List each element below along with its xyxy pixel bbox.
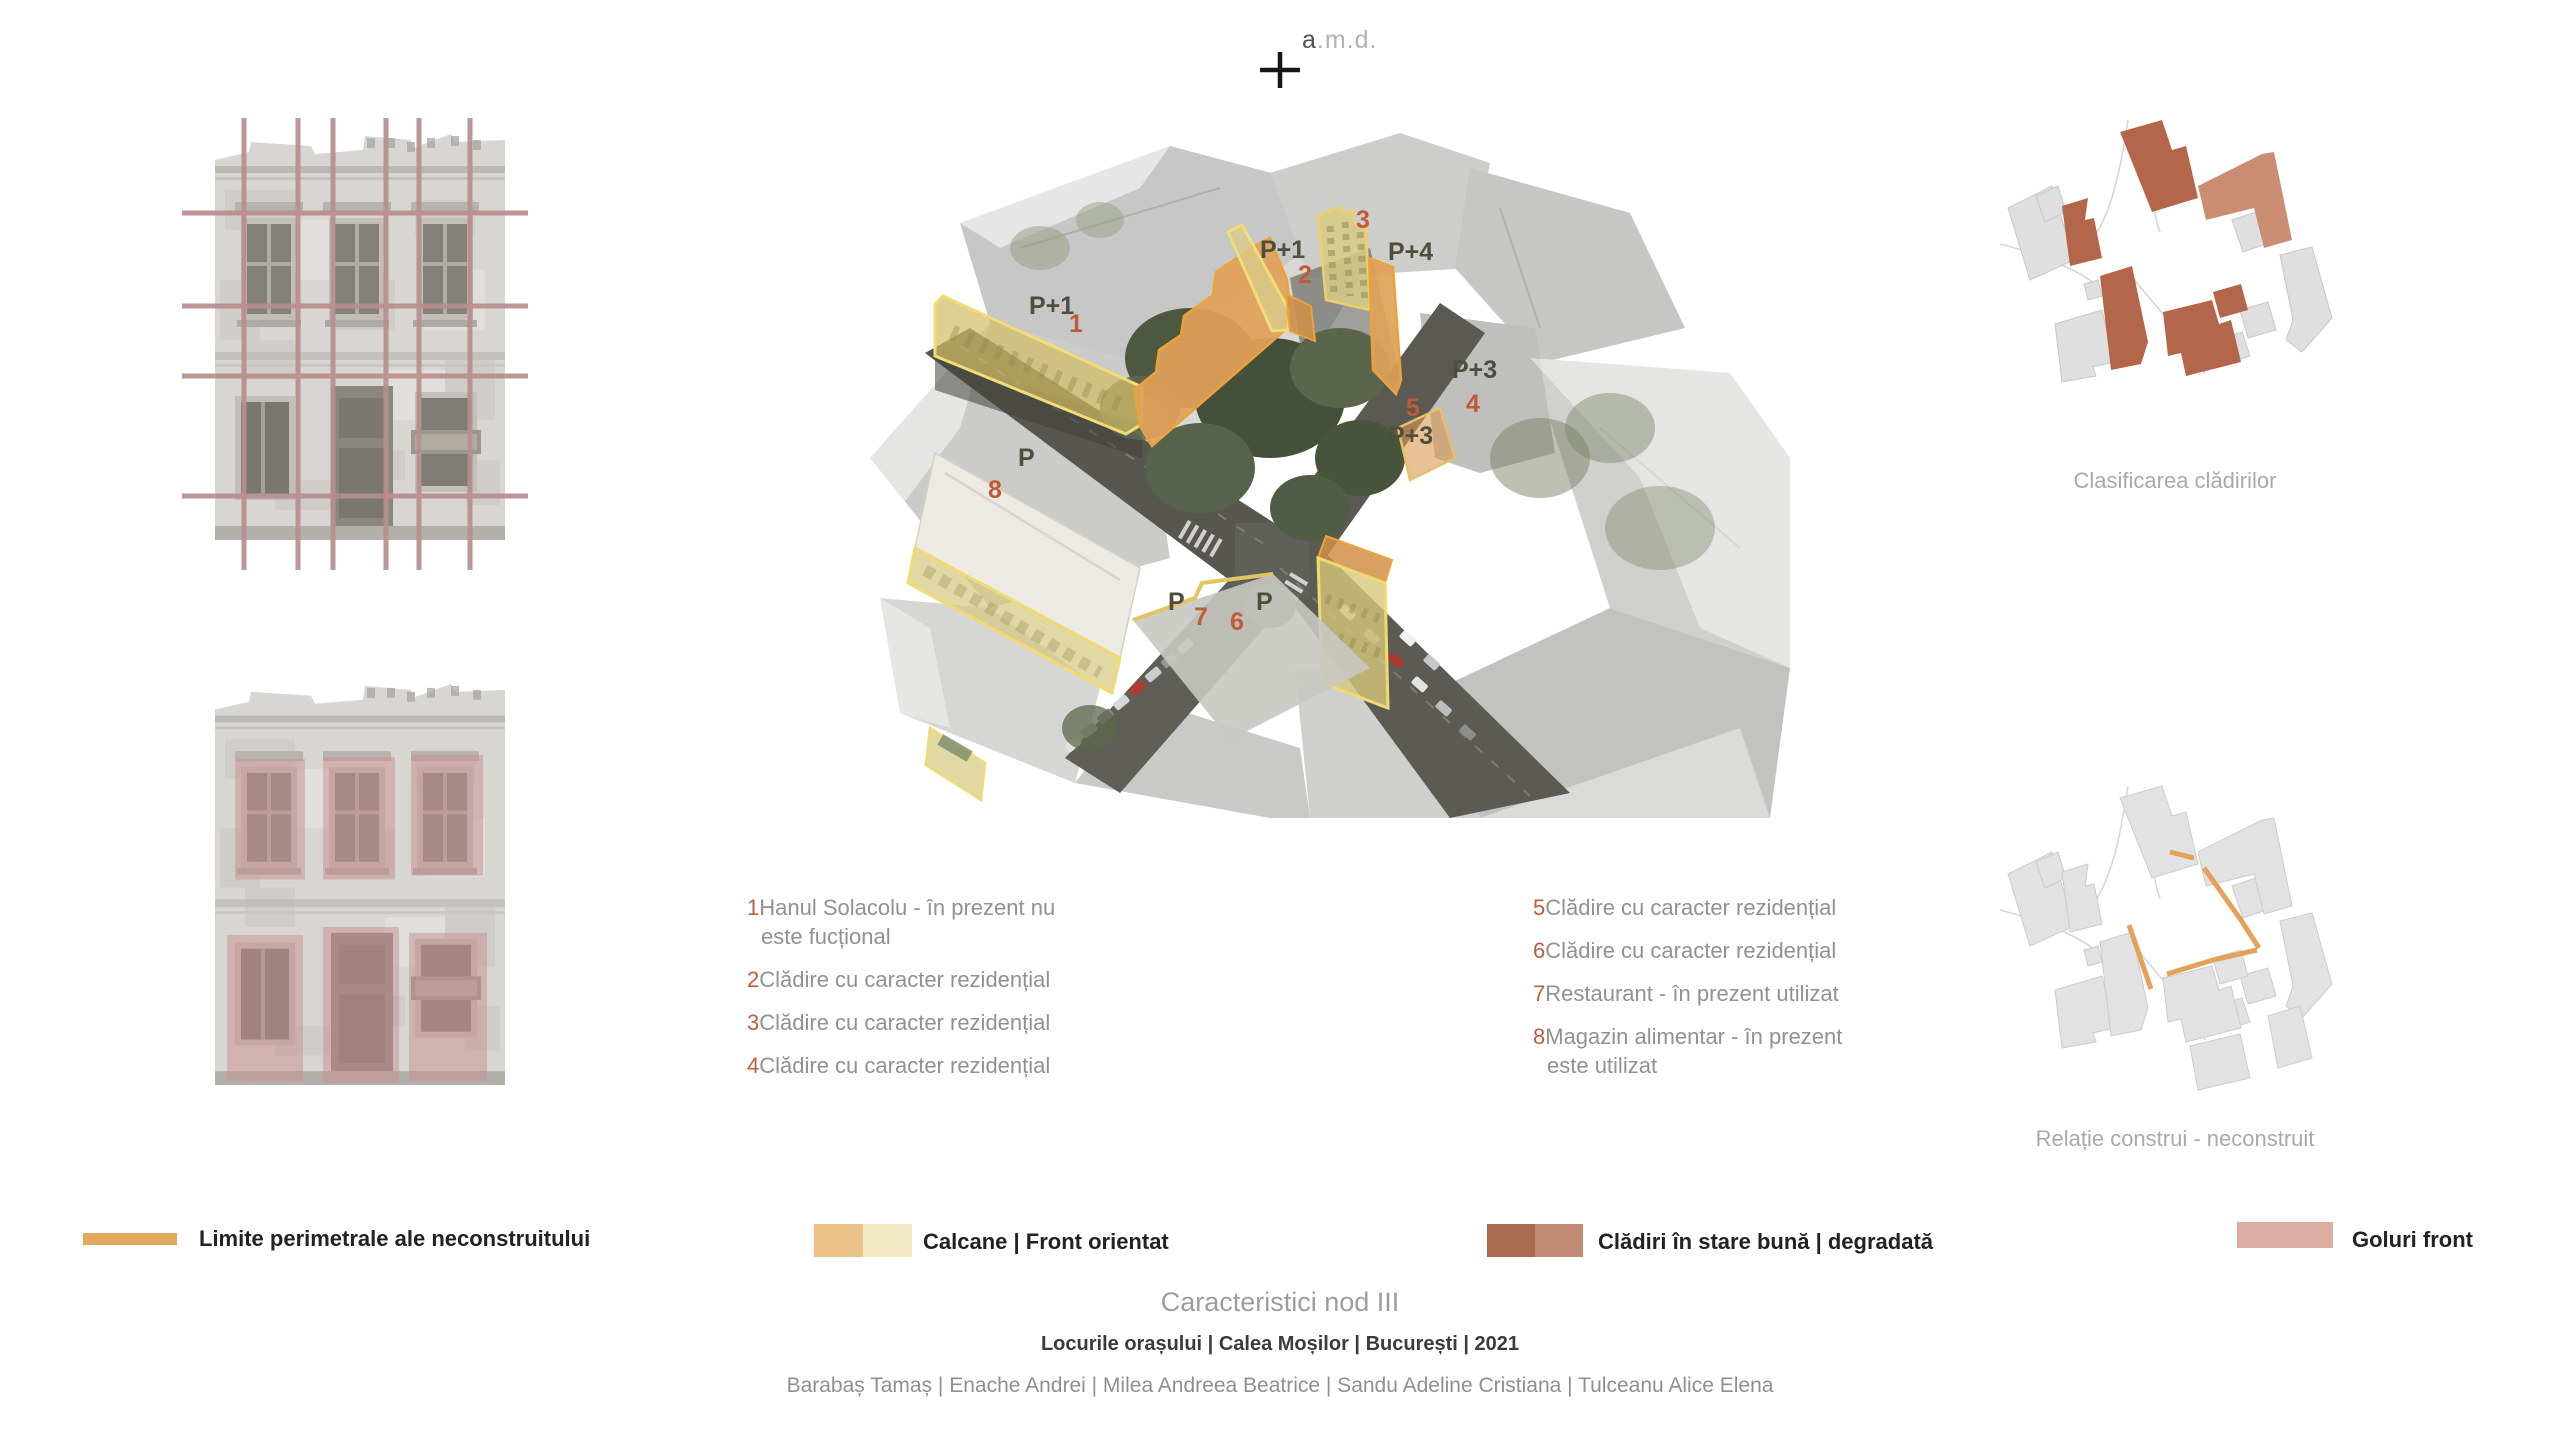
brand-text-dark: a — [1302, 26, 1317, 54]
item-text: Magazin alimentar - în prezent este util… — [1545, 1024, 1842, 1078]
axonometric-aerial-view: P+1 1 P+1 2 3 P+4 P+3 4 5 P+3 P 8 P 7 6 … — [840, 128, 1790, 818]
item-number: 6 — [1533, 938, 1545, 963]
legend-swatch-calcane — [814, 1224, 912, 1257]
authors-line: Barabaș Tamaș | Enache Andrei | Milea An… — [0, 1374, 2560, 1398]
building-list-right: 5Clădire cu caracter rezidențial 6Clădir… — [1533, 893, 1885, 1094]
building-number: 1 — [1069, 310, 1083, 338]
building-number: 3 — [1356, 206, 1370, 234]
list-item: 5Clădire cu caracter rezidențial — [1533, 893, 1885, 922]
item-text: Clădire cu caracter rezidențial — [759, 967, 1050, 992]
brand-logo: a.m.d. — [1302, 26, 1377, 55]
floors-label: P — [1256, 588, 1273, 616]
plus-icon — [1258, 50, 1302, 90]
building-number: 6 — [1230, 608, 1244, 636]
building-number: 5 — [1406, 394, 1420, 422]
floors-label: P+4 — [1388, 238, 1433, 266]
list-item: 7Restaurant - în prezent utilizat — [1533, 979, 1885, 1008]
legend-swatch-limits — [83, 1233, 177, 1245]
floors-label: P — [1168, 588, 1185, 616]
building-number: 7 — [1194, 603, 1208, 631]
building-number: 4 — [1466, 390, 1480, 418]
legend-label-calcane: Calcane | Front orientat — [923, 1228, 1169, 1256]
floors-label: P+3 — [1388, 422, 1433, 450]
classification-plan — [2000, 112, 2350, 417]
list-item: 8Magazin alimentar - în prezent este uti… — [1533, 1022, 1885, 1080]
item-text: Restaurant - în prezent utilizat — [1545, 981, 1838, 1006]
floors-label: P+1 — [1029, 292, 1074, 320]
floors-label: P+1 — [1260, 236, 1305, 264]
list-item: 6Clădire cu caracter rezidențial — [1533, 936, 1885, 965]
poster-canvas: a.m.d. — [0, 0, 2560, 1440]
item-number: 2 — [747, 967, 759, 992]
legend-swatch-goluri — [2237, 1222, 2333, 1248]
facade-grid-image — [180, 112, 530, 577]
floors-label: P+3 — [1452, 356, 1497, 384]
item-number: 8 — [1533, 1024, 1545, 1049]
building-number: 8 — [988, 476, 1002, 504]
list-item: 2Clădire cu caracter rezidențial — [747, 965, 1099, 994]
classification-caption: Clasificarea clădirilor — [2000, 468, 2350, 494]
legend-label-stare: Clădiri în stare bună | degradată — [1598, 1228, 1933, 1256]
project-subtitle: Locurile orașului | Calea Moșilor | Bucu… — [0, 1333, 2560, 1356]
item-number: 5 — [1533, 895, 1545, 920]
building-number: 2 — [1298, 261, 1312, 289]
relation-caption: Relație construi - neconstruit — [1975, 1126, 2375, 1152]
item-text: Clădire cu caracter rezidențial — [759, 1010, 1050, 1035]
plan-buildings-gray — [2008, 786, 2332, 1090]
item-text: Clădire cu caracter rezidențial — [759, 1053, 1050, 1078]
item-number: 7 — [1533, 981, 1545, 1006]
swatch-calcane — [814, 1224, 863, 1257]
list-item: 3Clădire cu caracter rezidențial — [747, 1008, 1099, 1037]
item-number: 1 — [747, 895, 759, 920]
swatch-front-orientat — [863, 1224, 912, 1257]
page-title: Caracteristici nod III — [0, 1287, 2560, 1318]
item-number: 3 — [747, 1010, 759, 1035]
item-text: Hanul Solacolu - în prezent nu este fucț… — [759, 895, 1055, 949]
swatch-degradata — [1535, 1224, 1583, 1257]
list-item: 1Hanul Solacolu - în prezent nu este fuc… — [747, 893, 1099, 951]
facade-openings-image — [215, 680, 505, 1085]
item-number: 4 — [747, 1053, 759, 1078]
legend-label-goluri: Goluri front — [2352, 1226, 2473, 1254]
item-text: Clădire cu caracter rezidențial — [1545, 895, 1836, 920]
item-text: Clădire cu caracter rezidențial — [1545, 938, 1836, 963]
relation-plan — [2000, 768, 2350, 1103]
legend-label-limits: Limite perimetrale ale neconstruitului — [199, 1225, 590, 1253]
building-list-left: 1Hanul Solacolu - în prezent nu este fuc… — [747, 893, 1099, 1094]
swatch-stare-buna — [1487, 1224, 1535, 1257]
floors-label: P — [1018, 444, 1035, 472]
brand-text-light: .m.d. — [1317, 26, 1378, 54]
legend-swatch-stare — [1487, 1224, 1583, 1257]
list-item: 4Clădire cu caracter rezidențial — [747, 1051, 1099, 1080]
